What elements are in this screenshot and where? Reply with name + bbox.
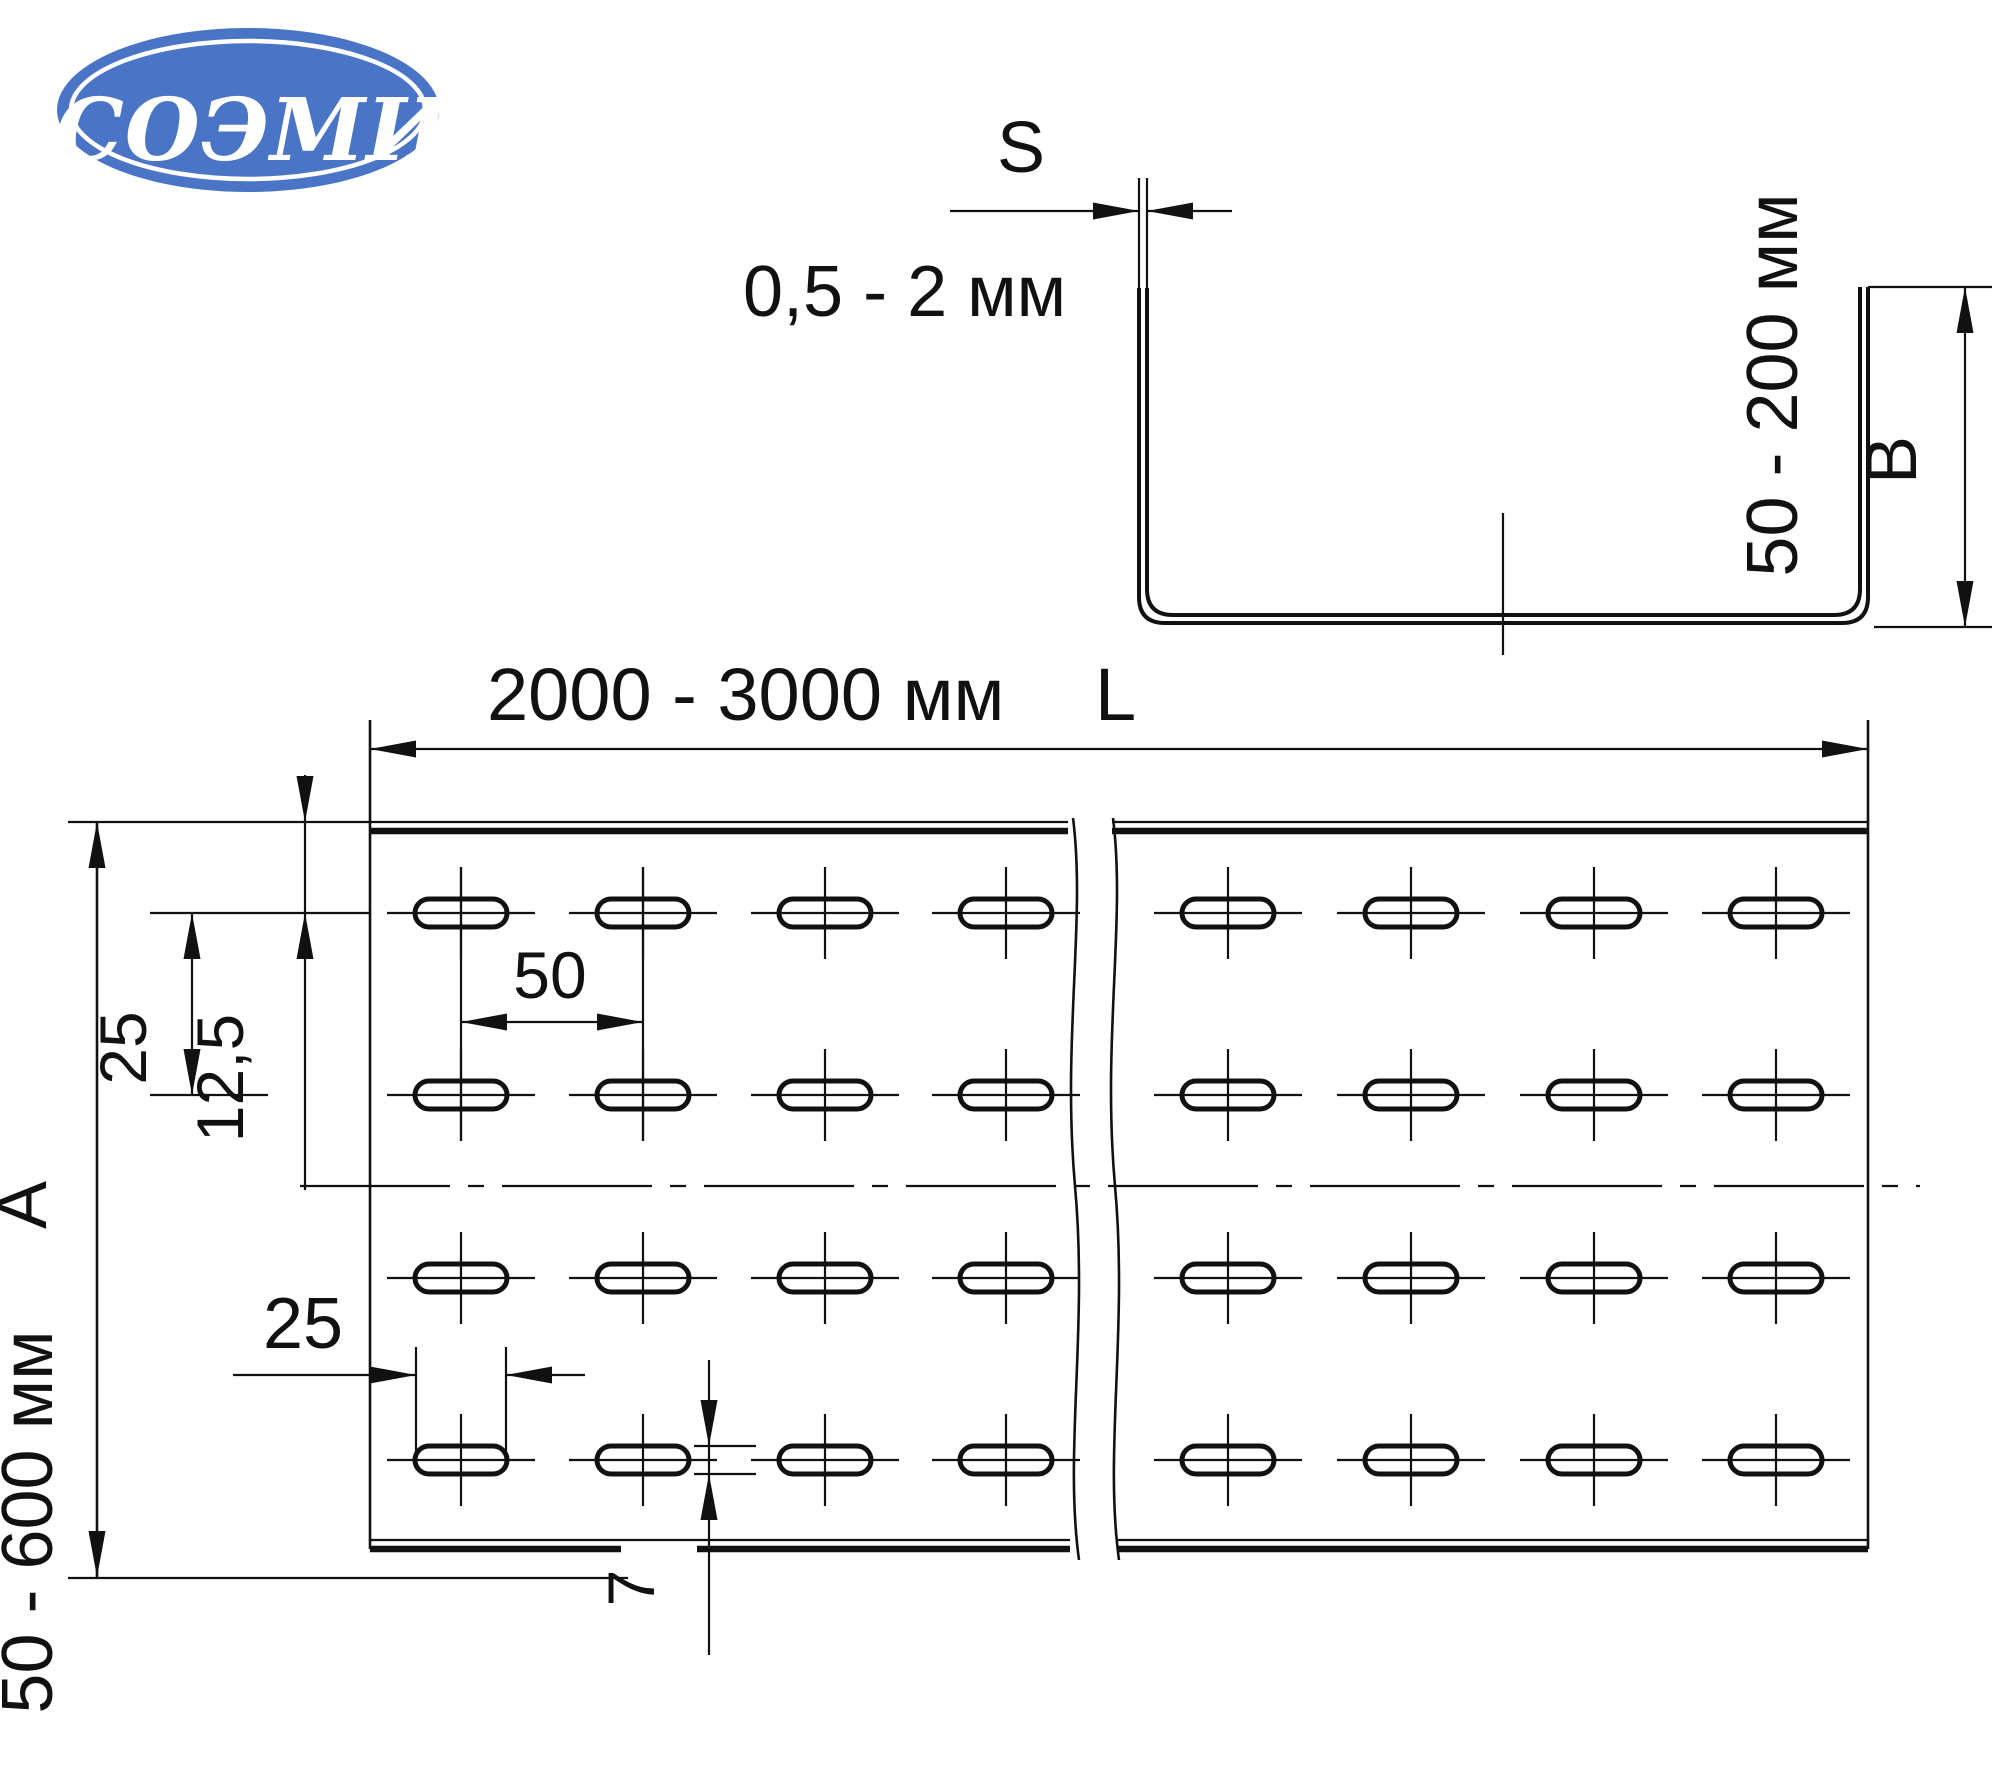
hole-pitch-label: 50 (513, 938, 586, 1012)
dimension-arrowhead (297, 913, 314, 959)
dimension-arrowhead (1957, 581, 1974, 627)
row-pitch-label: 25 (86, 1011, 160, 1084)
slot-hole (1337, 1232, 1485, 1324)
dimension-arrowhead (89, 822, 106, 868)
slot-hole (1520, 1414, 1668, 1506)
width-range-label: 50 - 600 мм (0, 1330, 68, 1713)
width-letter: A (0, 1181, 62, 1229)
length-range-label: 2000 - 3000 мм (487, 653, 1004, 736)
plan-view: 2000 - 3000 мм L 50 - 600 мм A 25 12,5 5… (0, 653, 1920, 1714)
thickness-letter: S (997, 108, 1045, 188)
slot-hole (1702, 1049, 1850, 1141)
side-height-letter: B (1852, 436, 1932, 484)
slot-hole (932, 1232, 1080, 1324)
slot-hole (751, 1232, 899, 1324)
cross-section-view: S 0,5 - 2 мм 50 - 200 мм B (743, 108, 1992, 655)
dimension-arrowhead (597, 1014, 643, 1031)
slot-hole (932, 1414, 1080, 1506)
slot-hole (1337, 1414, 1485, 1506)
slot-hole (387, 1049, 535, 1141)
slot-hole (751, 1414, 899, 1506)
slot-hole (1154, 867, 1302, 959)
dimension-arrowhead (701, 1474, 718, 1520)
slot-hole (1520, 867, 1668, 959)
dimension-arrowhead (701, 1400, 718, 1446)
length-letter: L (1095, 653, 1136, 736)
side-height-range-label: 50 - 200 мм (1733, 193, 1813, 576)
slot-hole (569, 1232, 717, 1324)
cable-tray-drawing: СОЭМИ S 0,5 - 2 мм 50 - 200 мм B (0, 0, 2000, 1771)
dimension-arrowhead (1147, 203, 1193, 220)
dimension-arrowhead (89, 1531, 106, 1577)
company-logo: СОЭМИ (55, 28, 450, 192)
slot-hole (1154, 1049, 1302, 1141)
slot-hole (932, 867, 1080, 959)
slot-hole (387, 1414, 535, 1506)
slot-hole (1702, 1414, 1850, 1506)
dimension-arrowhead (297, 776, 314, 822)
hole-length-label: 25 (263, 1284, 343, 1364)
dimension-arrowhead (1957, 287, 1974, 333)
thickness-range-label: 0,5 - 2 мм (743, 252, 1066, 332)
dimension-arrowhead (370, 1367, 416, 1384)
dimension-arrowhead (184, 913, 201, 959)
slot-hole (569, 1414, 717, 1506)
slot-hole (1520, 1049, 1668, 1141)
slot-hole (1337, 1049, 1485, 1141)
technical-drawing-page: СОЭМИ S 0,5 - 2 мм 50 - 200 мм B (0, 0, 2000, 1771)
slot-hole (1337, 867, 1485, 959)
slot-hole (1154, 1232, 1302, 1324)
slot-hole (1520, 1232, 1668, 1324)
slot-hole (751, 1049, 899, 1141)
dimension-arrowhead (461, 1014, 507, 1031)
break-line-left (1071, 818, 1079, 1560)
dimension-arrowhead (1822, 741, 1868, 758)
slot-hole (387, 1232, 535, 1324)
slot-hole (569, 867, 717, 959)
slot-hole (932, 1049, 1080, 1141)
logo-text: СОЭМИ (55, 80, 450, 181)
dimension-arrowhead (1093, 203, 1139, 220)
slot-hole (751, 867, 899, 959)
slot-hole (1702, 867, 1850, 959)
slot-hole (1702, 1232, 1850, 1324)
hole-height-label: 7 (594, 1570, 668, 1607)
dimension-arrowhead (506, 1367, 552, 1384)
break-line-right (1111, 818, 1119, 1560)
slot-hole (1154, 1414, 1302, 1506)
dimension-arrowhead (370, 741, 416, 758)
slot-hole (569, 1049, 717, 1141)
